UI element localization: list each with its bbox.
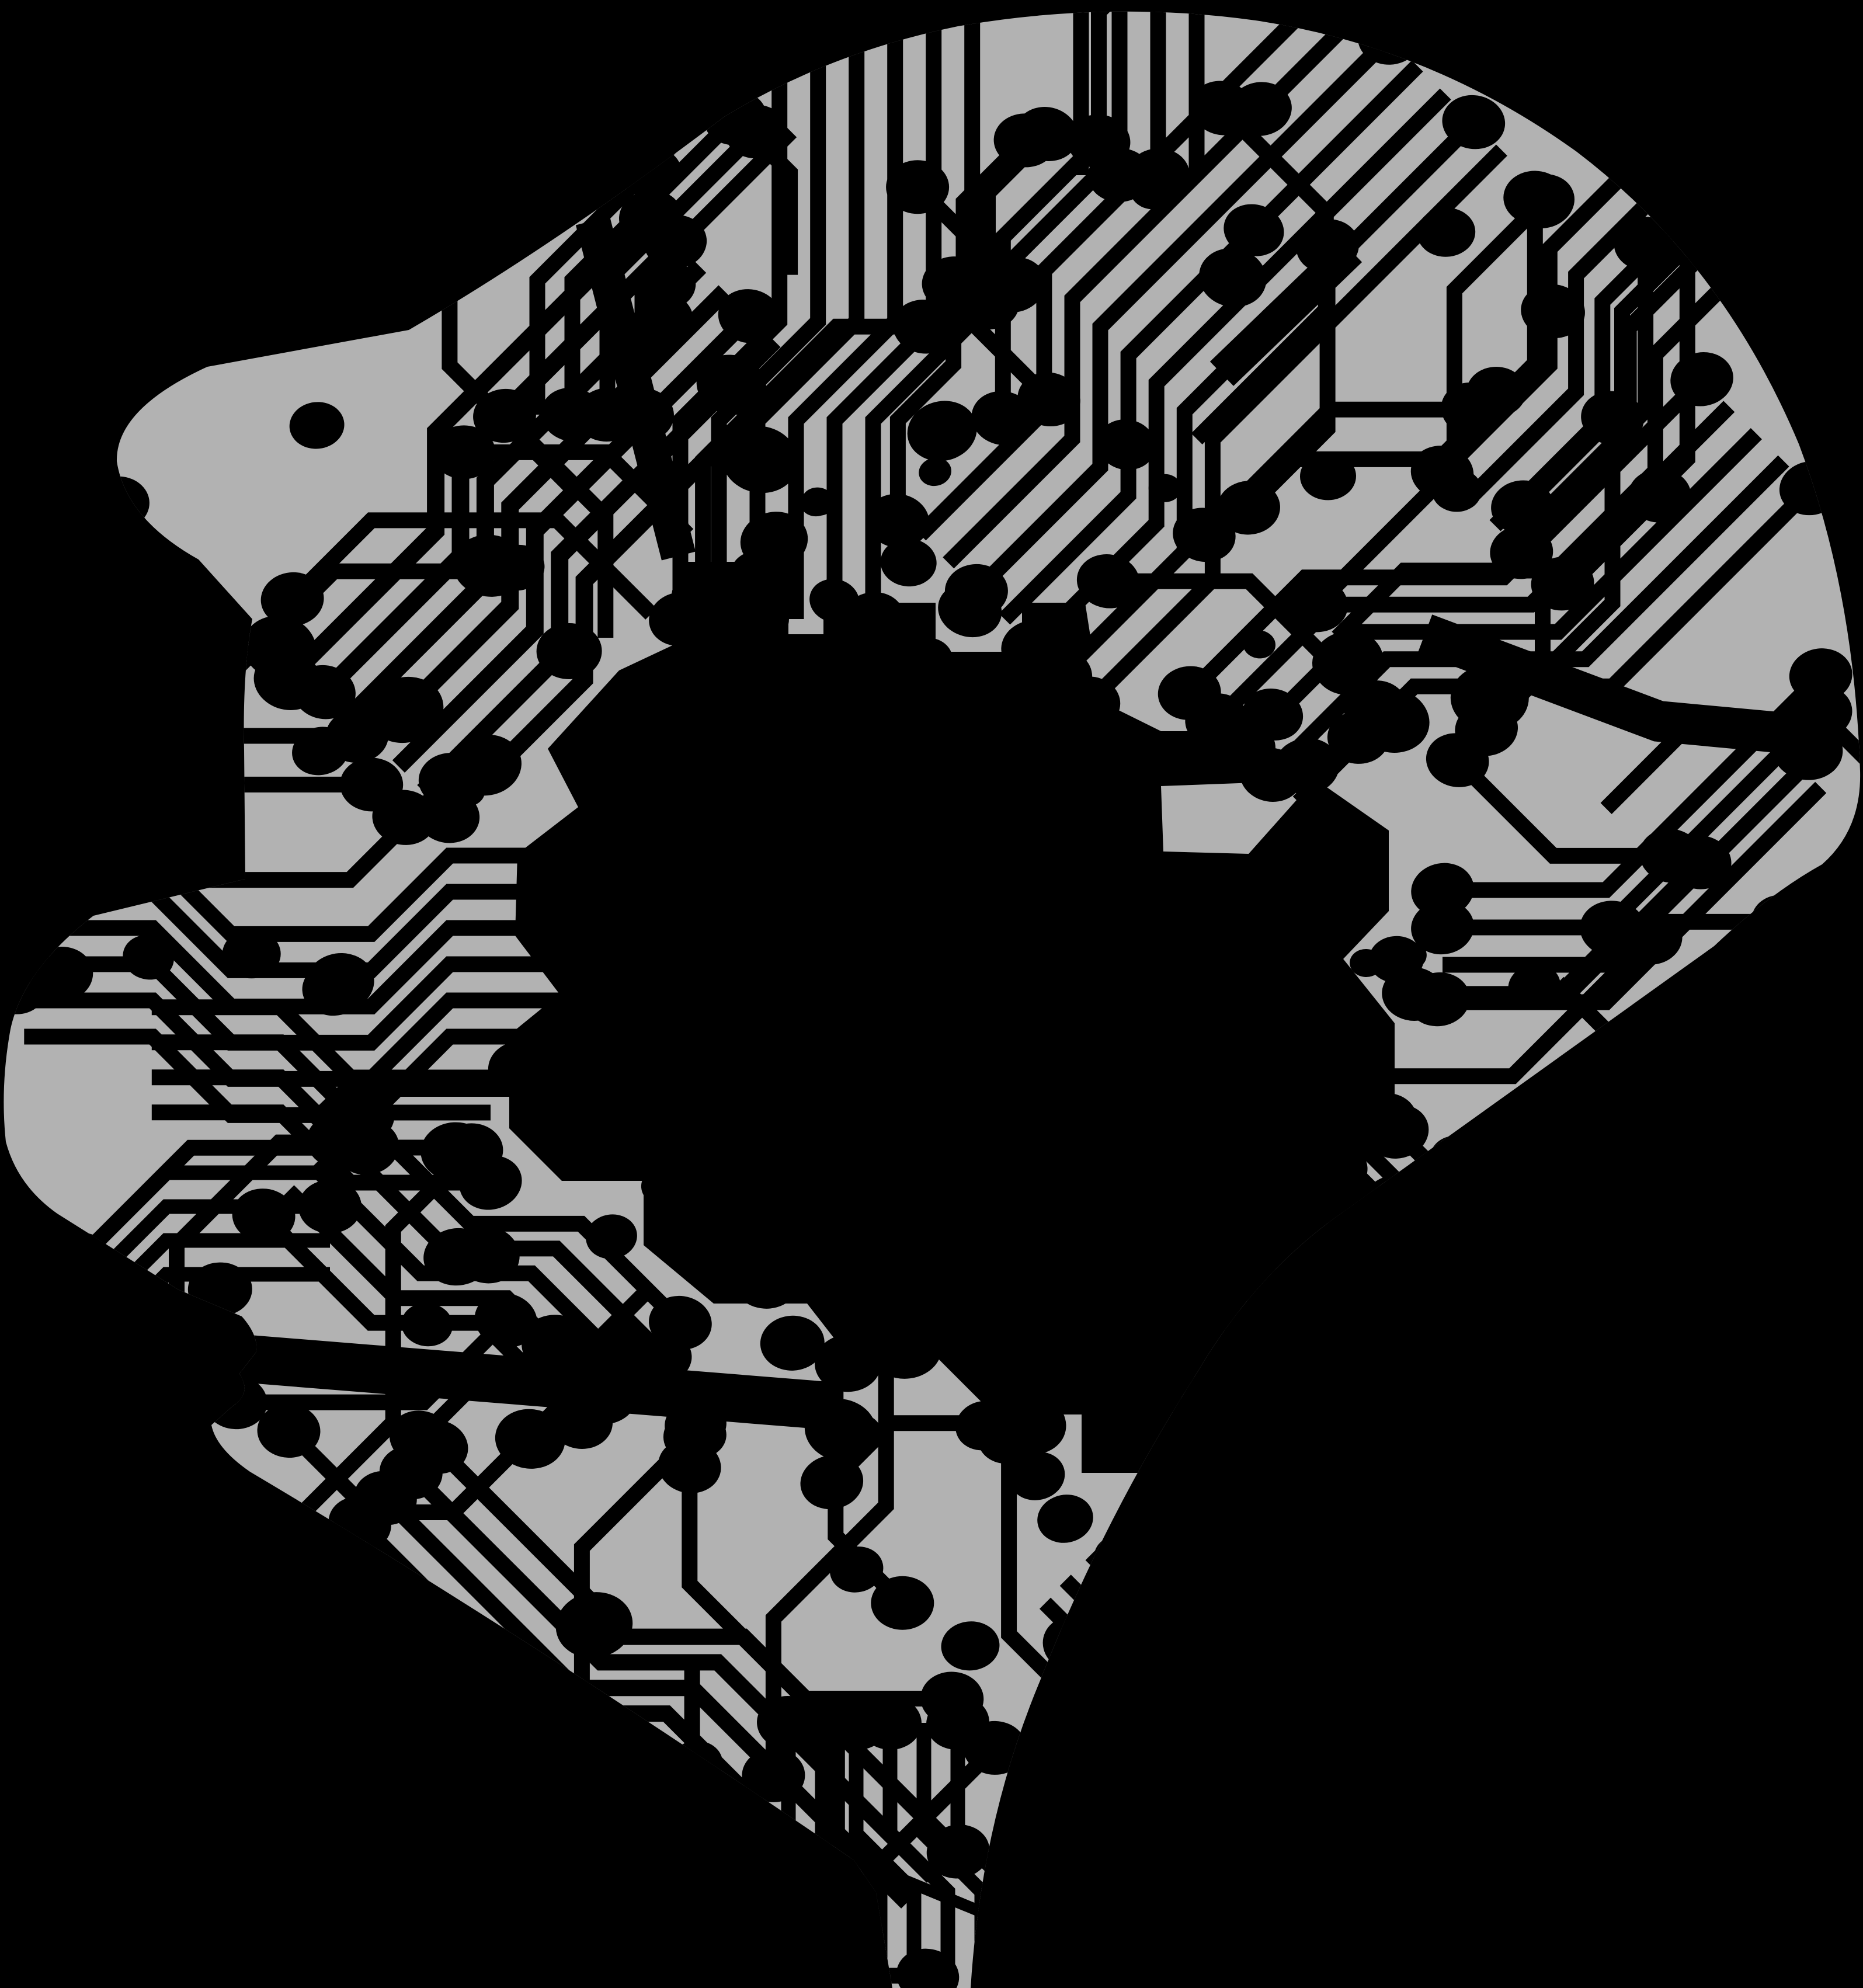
circuit-head-artwork: Human head in left-facing profile, silho… <box>0 0 1863 1988</box>
isolated-pad <box>223 929 281 978</box>
artwork-stage: Human head in left-facing profile, silho… <box>0 0 1863 1988</box>
via-pad <box>1149 474 1181 502</box>
solder-pad <box>886 160 949 214</box>
isolated-pad <box>1431 468 1482 512</box>
solder-pad <box>1628 469 1691 523</box>
isolated-pad <box>1466 367 1526 417</box>
solder-pad <box>871 1576 934 1630</box>
